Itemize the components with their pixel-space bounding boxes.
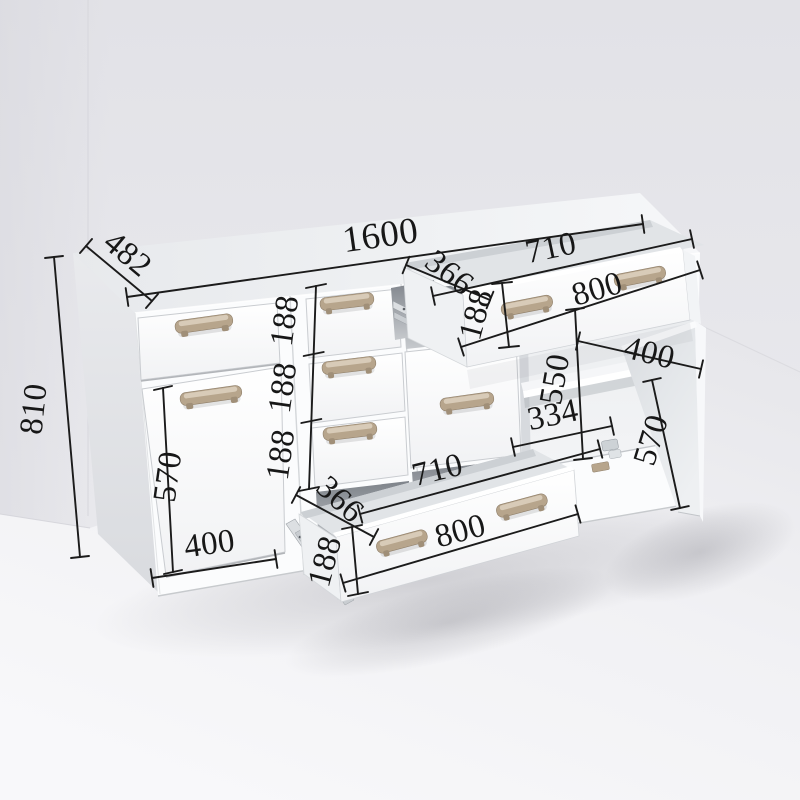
furniture-dimension-render: 1600 482 810 188 188 188 570 400 366 710… [0,0,800,800]
dim-label-overall-height: 810 [13,382,54,436]
dim-label-middle-drawer-2: 188 [262,360,305,416]
dim-label-middle-drawer-1: 188 [264,293,307,349]
door-hinge-arm [608,449,621,459]
dim-label-left-door-height: 570 [147,449,190,505]
dim-label-left-door-width: 400 [182,523,238,566]
dim-label-middle-drawer-3: 188 [260,427,303,483]
render-canvas: 1600 482 810 188 188 188 570 400 366 710… [0,0,800,800]
